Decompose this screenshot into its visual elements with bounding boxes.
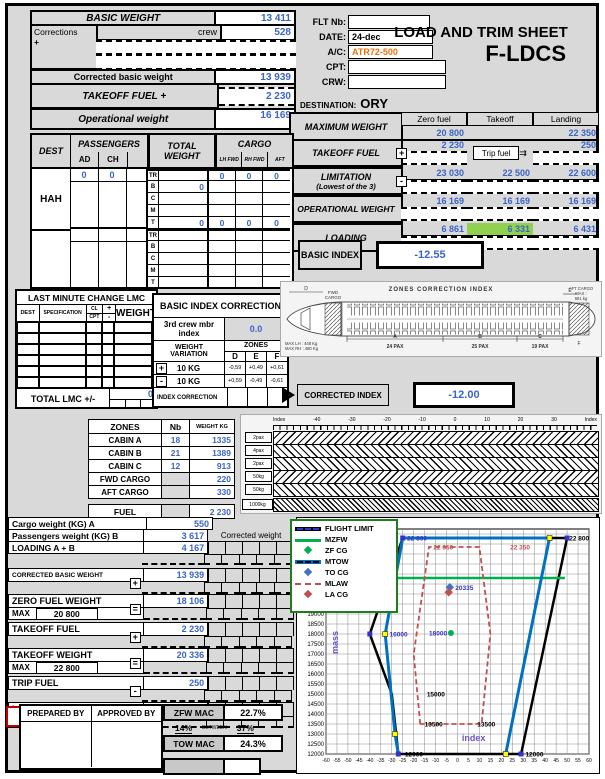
svg-text:13000: 13000 xyxy=(307,732,324,738)
entry-cell[interactable] xyxy=(277,622,294,636)
tof-entry-ld[interactable] xyxy=(533,151,599,165)
svg-text:-25: -25 xyxy=(399,758,406,764)
lmc-cell[interactable] xyxy=(114,355,152,366)
minus-symbol: - xyxy=(396,176,407,187)
mac-range-high: 37% xyxy=(237,723,254,734)
sum-trip-sym: - xyxy=(130,686,141,697)
cargo-aft-cell[interactable] xyxy=(263,231,290,241)
total-weight-cell[interactable]: 0 xyxy=(159,217,209,229)
svg-text:-30: -30 xyxy=(388,758,395,764)
opw-entry-ld[interactable] xyxy=(533,207,599,221)
extra-merged-2[interactable] xyxy=(126,241,147,289)
correction-value-1[interactable] xyxy=(220,40,296,56)
lmc-cell[interactable] xyxy=(17,366,39,377)
svg-text:-15: -15 xyxy=(421,758,428,764)
corrected-grid-row xyxy=(206,662,294,674)
entry-cell[interactable] xyxy=(259,608,276,620)
entry-cell[interactable] xyxy=(208,568,226,582)
sum-trip-value[interactable]: 250 xyxy=(143,676,208,690)
lim-entry-ld[interactable] xyxy=(533,180,599,194)
corrected-grid-row xyxy=(206,608,294,620)
lmc-cell[interactable] xyxy=(102,355,114,366)
lmc-minus: - xyxy=(103,314,115,322)
pax-row: M xyxy=(146,265,290,277)
cargo-rh-cell[interactable]: 0 xyxy=(236,217,263,229)
lmc-cell[interactable] xyxy=(17,344,39,355)
ad-merged-2[interactable] xyxy=(70,241,99,289)
lmc-cell[interactable] xyxy=(86,322,102,333)
tof-entry-zf[interactable] xyxy=(401,151,467,165)
lmc-cell[interactable] xyxy=(86,344,102,355)
legend-flight-limit: FLIGHT LIMIT xyxy=(325,524,374,533)
lmc-cell[interactable] xyxy=(114,333,152,344)
pax-row: B0 xyxy=(146,181,290,193)
entry-cell[interactable] xyxy=(226,541,243,554)
plus-symbol: + xyxy=(396,148,407,159)
total-weight-cell[interactable] xyxy=(159,205,209,217)
cargo-col-rhfwd: RH FWD xyxy=(242,152,267,167)
passengers-header: PASSENGERS xyxy=(71,135,147,152)
mtow-swatch xyxy=(295,558,321,566)
lmc-cell[interactable] xyxy=(17,355,39,366)
lim-entry-to[interactable] xyxy=(467,180,533,194)
lmc-cell[interactable] xyxy=(39,366,86,377)
entry-cell[interactable] xyxy=(206,608,224,620)
bic-plus-d: -0,59 xyxy=(225,362,246,374)
fwd-cargo-nb xyxy=(162,473,190,485)
lmc-cell[interactable] xyxy=(39,355,86,366)
entry-cell[interactable] xyxy=(222,554,239,565)
strip-row-50kg-a xyxy=(273,470,599,484)
entry-cell[interactable] xyxy=(242,662,259,674)
cargo-lh-cell[interactable] xyxy=(209,265,236,277)
opw-entry-zf[interactable] xyxy=(401,207,467,221)
cargo-aft-cell[interactable] xyxy=(263,193,290,205)
tow-mac-value: 24.3% xyxy=(223,735,283,752)
pax-row: C xyxy=(146,193,290,205)
corrected-grid-row xyxy=(204,554,292,565)
ac-label: A/C: xyxy=(300,47,346,57)
svg-text:15000: 15000 xyxy=(307,692,324,698)
lim-entry-zf[interactable] xyxy=(401,180,467,194)
cargo-aft-cell[interactable]: 0 xyxy=(263,217,290,229)
row-code: T xyxy=(146,217,159,229)
sum-tof-value: 2 230 xyxy=(143,622,208,636)
lmc-cell[interactable] xyxy=(86,377,102,388)
crw-input[interactable] xyxy=(348,75,446,89)
entry-dash[interactable] xyxy=(142,582,204,594)
ch-merged-1[interactable] xyxy=(98,181,127,229)
entry-cell[interactable] xyxy=(275,636,292,648)
cabin-b-weight: 1389 xyxy=(190,447,234,459)
entry-cell[interactable] xyxy=(222,582,239,594)
bic-minus-e: -0,49 xyxy=(246,375,267,387)
bic-index-correction-label: INDEX CORRECTION xyxy=(154,388,228,407)
row-code: C xyxy=(146,193,159,205)
lmc-cpt-header: CPT xyxy=(87,314,103,322)
entry-cell[interactable] xyxy=(226,648,243,662)
cargo-lh-cell[interactable] xyxy=(209,181,236,193)
svg-text:22 800: 22 800 xyxy=(569,536,589,543)
cargo-rh-cell[interactable] xyxy=(236,277,263,289)
lmc-total-label: TOTAL LMC +/- xyxy=(17,389,109,409)
svg-text:35: 35 xyxy=(531,758,537,764)
sum-cbw-sym: + xyxy=(130,578,141,589)
entry-cell[interactable] xyxy=(226,676,243,690)
sum-zfw-label: ZERO FUEL WEIGHT = xyxy=(8,594,144,608)
lmc-cell[interactable] xyxy=(114,322,152,333)
entry-cell[interactable] xyxy=(243,648,260,662)
strip-tick: -20 xyxy=(383,417,390,423)
sum-tow-max: 22 800 xyxy=(36,662,98,674)
entry-cell[interactable] xyxy=(257,636,274,648)
bic-zone-e: E xyxy=(246,352,267,362)
entry-cell[interactable] xyxy=(242,608,259,620)
arrow-icon xyxy=(282,387,295,403)
chart-legend: FLIGHT LIMIT MZFW ZF CG MTOW TO CG MLAW … xyxy=(290,519,398,613)
strip-tag-2pax-a: 2pax xyxy=(245,432,272,443)
svg-text:40: 40 xyxy=(542,758,548,764)
entry-cell[interactable] xyxy=(260,676,277,690)
entry-cell[interactable] xyxy=(206,662,224,674)
basic-index-label: BASIC INDEX xyxy=(298,240,362,270)
lmc-cell[interactable] xyxy=(114,344,152,355)
svg-text:18000: 18000 xyxy=(429,631,447,638)
cargo-lh-cell[interactable] xyxy=(209,193,236,205)
bic-plus-f: +0,61 xyxy=(267,362,287,374)
entry-cell[interactable] xyxy=(208,622,226,636)
entry-cell[interactable] xyxy=(260,622,277,636)
cargo-aft-cell[interactable] xyxy=(263,181,290,193)
sum-zfw-sym: = xyxy=(130,604,141,615)
approved-by-label: APPROVED BY xyxy=(92,706,162,721)
entry-cell[interactable] xyxy=(204,690,222,702)
svg-text:18000: 18000 xyxy=(307,632,324,638)
ad-merged-1[interactable] xyxy=(70,181,99,229)
corrected-grid-row xyxy=(204,690,292,702)
dest-value[interactable]: HAH xyxy=(32,169,71,231)
lmc-cell[interactable] xyxy=(102,333,114,344)
lim-to: 22 500 xyxy=(467,167,533,180)
mac-block: ZFW MAC 22.7% 14% BETWEEN 37% TOW MAC 24… xyxy=(163,704,283,775)
lmc-spec-header: SPECIFICATION xyxy=(40,305,87,321)
basic-index: BASIC INDEX -12.55 xyxy=(298,240,484,270)
entry-cell[interactable] xyxy=(208,648,226,662)
entry-cell[interactable] xyxy=(243,568,260,582)
sum-cbw-value: 13 939 xyxy=(143,568,208,582)
lmc-cell[interactable] xyxy=(39,333,86,344)
basic-weight-block: BASIC WEIGHT 13 411 Corrections + crew 5… xyxy=(30,10,296,130)
zone-a-pax: 24 PAX xyxy=(387,344,405,350)
svg-text:16000: 16000 xyxy=(307,672,324,678)
strip-tag-4pax: 4pax xyxy=(245,445,272,456)
lmc-cell[interactable] xyxy=(39,344,86,355)
bic-ic-d[interactable] xyxy=(228,388,248,407)
entry-cell[interactable] xyxy=(208,594,226,608)
opw-zf: 16 169 xyxy=(401,195,467,207)
total-weight-cell[interactable] xyxy=(159,241,209,253)
lmc-cell[interactable] xyxy=(114,377,152,388)
aft-cargo-nb xyxy=(162,486,190,498)
svg-text:5: 5 xyxy=(467,758,470,764)
cpt-label: CPT: xyxy=(300,62,346,72)
lmc-cell[interactable] xyxy=(102,366,114,377)
total-weight-cell[interactable] xyxy=(159,231,209,241)
lmc-weight-header: WEIGHT xyxy=(116,305,156,321)
date-label: DATE: xyxy=(300,32,346,42)
strips-axis-right: Index xyxy=(585,417,597,423)
total-weight-cell[interactable] xyxy=(159,253,209,265)
svg-text:-35: -35 xyxy=(377,758,384,764)
svg-text:12000: 12000 xyxy=(307,752,324,758)
cargo-lh-cell[interactable]: 0 xyxy=(209,217,236,229)
pax-table-body: HAH 0 0 TR000B0CMT0000TRBCMT xyxy=(32,167,292,289)
corrections-label: Corrections + xyxy=(30,24,98,70)
extra-merged-1[interactable] xyxy=(126,181,147,229)
entry-cell[interactable] xyxy=(208,541,226,554)
zone-a-label: A xyxy=(393,334,397,340)
strip-tick: -10 xyxy=(419,417,426,423)
entry-cell[interactable] xyxy=(222,690,239,702)
correction-entry-2[interactable] xyxy=(96,54,222,70)
cargo-lh-cell[interactable] xyxy=(209,277,236,289)
cargo-lh-cell[interactable]: 0 xyxy=(209,171,236,181)
bic-plus-sym: + xyxy=(156,363,167,374)
tocg-swatch xyxy=(295,569,321,577)
entry-cell[interactable] xyxy=(204,582,222,594)
strip-tag-1000kg: 1000kg xyxy=(242,499,273,510)
corrected-grid-row xyxy=(208,676,294,690)
destination-value: ORY xyxy=(360,96,388,111)
cargo-rh-cell[interactable] xyxy=(236,193,263,205)
entry-cell[interactable] xyxy=(204,636,222,648)
lmc-cell[interactable] xyxy=(17,322,39,333)
lmc-row xyxy=(17,322,156,333)
entry-cell[interactable] xyxy=(226,594,243,608)
opw-to: 16 169 xyxy=(467,195,533,207)
bic-zone-d: D xyxy=(225,352,246,362)
corrected-grid-row xyxy=(208,568,294,582)
bic-ic-e[interactable] xyxy=(248,388,268,407)
weight-header: WEIGHT KG xyxy=(190,420,234,433)
strip-tag-2pax-b: 2pax xyxy=(245,458,272,469)
cargo-rh-cell[interactable] xyxy=(236,253,263,265)
zone-d-label: D xyxy=(304,286,308,292)
aircraft-diagram-svg: ZONES CORRECTION INDEX FWD CARGO AFT CAR… xyxy=(281,282,601,356)
lmc-cell[interactable] xyxy=(39,377,86,388)
entry-dash[interactable] xyxy=(142,636,204,648)
entry-cell[interactable] xyxy=(260,648,277,662)
mac-extra-white[interactable] xyxy=(223,758,261,775)
strip-tick: 10 xyxy=(484,417,490,423)
cargo-aft-cell[interactable] xyxy=(263,265,290,277)
entry-cell[interactable] xyxy=(226,568,243,582)
lmc-dest-header: DEST xyxy=(17,305,40,321)
svg-text:16000: 16000 xyxy=(390,632,408,639)
pax-row: TR000 xyxy=(146,169,290,181)
lmc-cl-header: CL xyxy=(87,305,103,314)
svg-text:50: 50 xyxy=(564,758,570,764)
entry-cell[interactable] xyxy=(260,541,277,554)
lmc-total-cell[interactable] xyxy=(126,400,142,409)
legend-mlaw: MLAW xyxy=(325,579,348,588)
entry-dash[interactable] xyxy=(142,554,204,565)
pax-row: M xyxy=(146,205,290,217)
svg-text:45: 45 xyxy=(553,758,559,764)
trip-fuel-box: Trip fuel xyxy=(473,146,519,160)
corrected-index: CORRECTED INDEX -12.00 xyxy=(282,382,515,408)
entry-cell[interactable] xyxy=(243,594,260,608)
lmc-cell[interactable] xyxy=(86,333,102,344)
entry-dash[interactable] xyxy=(144,608,206,620)
zone-f-label: F xyxy=(577,341,580,347)
svg-text:22 350: 22 350 xyxy=(510,545,530,552)
entry-cell[interactable] xyxy=(243,541,260,554)
entry-cell[interactable] xyxy=(260,568,277,582)
cargo-rh-cell[interactable] xyxy=(236,241,263,253)
bic-crew-value[interactable]: 0.0 xyxy=(225,318,287,340)
entry-cell[interactable] xyxy=(257,690,274,702)
lmc-total-cell[interactable] xyxy=(110,400,126,409)
cabin-c-nb: 12 xyxy=(162,460,190,472)
crew-value[interactable]: 528 xyxy=(220,24,296,41)
svg-text:-10: -10 xyxy=(432,758,439,764)
legend-tocg: TO CG xyxy=(325,568,349,577)
entry-cell[interactable] xyxy=(243,676,260,690)
svg-text:22 350: 22 350 xyxy=(433,545,453,552)
dest-cell-2[interactable] xyxy=(32,229,71,289)
correction-entry-1[interactable] xyxy=(96,40,222,56)
zone-b-label: B xyxy=(478,334,482,340)
approved-by-field[interactable] xyxy=(92,722,162,767)
entry-cell[interactable] xyxy=(277,676,294,690)
sum-cbw-label: CORRECTED BASIC WEIGHT + xyxy=(8,568,144,582)
row-code: B xyxy=(146,181,159,193)
row-code: TR xyxy=(146,231,159,241)
entry-cell[interactable] xyxy=(240,636,257,648)
entry-dash[interactable] xyxy=(142,690,204,702)
destination-label: DESTINATION: xyxy=(300,101,356,110)
strip-tick: 30 xyxy=(551,417,557,423)
lim-zf: 23 030 xyxy=(401,167,467,180)
entry-cell[interactable] xyxy=(260,594,277,608)
ch-merged-2[interactable] xyxy=(98,241,127,289)
lmc-cell[interactable] xyxy=(102,377,114,388)
svg-text:20: 20 xyxy=(499,758,505,764)
strip-tick: 20 xyxy=(518,417,524,423)
svg-text:30: 30 xyxy=(520,758,526,764)
cargo-rh-cell[interactable] xyxy=(236,181,263,193)
lmc-cell[interactable] xyxy=(102,322,114,333)
entry-dash[interactable] xyxy=(144,662,206,674)
entry-cell[interactable] xyxy=(240,554,257,565)
loading-entry-ld[interactable] xyxy=(533,236,599,250)
entry-cell[interactable] xyxy=(259,662,276,674)
entry-cell[interactable] xyxy=(277,648,294,662)
row-code: C xyxy=(146,253,159,265)
pax-row: TR xyxy=(146,229,290,241)
flight-limit-swatch xyxy=(295,525,321,533)
lmc-cell[interactable] xyxy=(114,366,152,377)
cargo-aft-cell[interactable] xyxy=(263,253,290,265)
prepared-by-field[interactable] xyxy=(21,722,92,767)
entry-cell[interactable] xyxy=(257,554,274,565)
pax-cargo-table: DEST PASSENGERS AD CH TOTAL WEIGHT CARGO… xyxy=(30,133,294,289)
cargo-lh-cell[interactable] xyxy=(209,253,236,265)
mzfw-swatch xyxy=(295,536,321,544)
entry-cell[interactable] xyxy=(226,622,243,636)
lmc-cell[interactable] xyxy=(102,344,114,355)
lmc-cell[interactable] xyxy=(39,322,86,333)
cargo-aft-cell[interactable] xyxy=(263,205,290,217)
total-weight-cell[interactable]: 0 xyxy=(159,181,209,193)
pax-row: T0000 xyxy=(146,217,290,229)
corrected-grid-row xyxy=(208,648,294,662)
cargo-lh-cell[interactable] xyxy=(209,231,236,241)
lmc-cell[interactable] xyxy=(17,377,39,388)
total-weight-cell[interactable] xyxy=(159,265,209,277)
entry-cell[interactable] xyxy=(208,676,226,690)
entry-cell[interactable] xyxy=(224,662,241,674)
cargo-rh-cell[interactable]: 0 xyxy=(236,171,263,181)
svg-text:15: 15 xyxy=(488,758,494,764)
mlaw-swatch xyxy=(295,580,321,588)
dest-header: DEST xyxy=(32,135,71,167)
entry-cell[interactable] xyxy=(204,554,222,565)
entry-cell[interactable] xyxy=(240,690,257,702)
cargo-col-lhfwd: LH FWD xyxy=(217,152,242,167)
entry-cell[interactable] xyxy=(240,582,257,594)
lmc-cell[interactable] xyxy=(17,333,39,344)
aft-cargo-label: AFT CARGO xyxy=(89,486,162,498)
limitation-label: LIMITATION (Lowest of the 3) - xyxy=(289,167,403,195)
bic-plus-e: +0,49 xyxy=(246,362,267,374)
entry-cell[interactable] xyxy=(277,662,294,674)
loading-ab-label: LOADING A + B xyxy=(8,541,144,554)
entry-cell[interactable] xyxy=(243,622,260,636)
total-weight-cell[interactable] xyxy=(159,171,209,181)
tof-landing: 250 xyxy=(533,139,599,151)
corrected-index-label: CORRECTED INDEX xyxy=(297,384,389,406)
total-weight-cell[interactable] xyxy=(159,277,209,289)
opw-label: OPERATIONAL WEIGHT xyxy=(289,195,403,223)
entry-cell[interactable] xyxy=(257,582,274,594)
total-weight-cell[interactable] xyxy=(159,193,209,205)
cargo-lh-cell[interactable] xyxy=(209,241,236,253)
entry-cell[interactable] xyxy=(224,608,241,620)
tow-mac-label: TOW MAC xyxy=(163,735,225,752)
cargo-lh-cell[interactable] xyxy=(209,205,236,217)
lmc-cell[interactable] xyxy=(86,366,102,377)
load-trim-sheet: BASIC WEIGHT 13 411 Corrections + crew 5… xyxy=(0,0,605,779)
cargo-aft-cell[interactable]: 0 xyxy=(263,171,290,181)
correction-value-2[interactable] xyxy=(220,54,296,70)
aft-cargo-weight: 330 xyxy=(190,486,234,498)
svg-text:0: 0 xyxy=(456,758,459,764)
sum-trip-label: TRIP FUEL - xyxy=(8,676,144,690)
svg-text:-20: -20 xyxy=(410,758,417,764)
cabin-b-nb: 21 xyxy=(162,447,190,459)
takeoff-fuel-value[interactable]: 2 230 xyxy=(219,87,294,106)
entry-cell[interactable] xyxy=(222,636,239,648)
cargo-rh-cell[interactable] xyxy=(236,205,263,217)
lmc-cell[interactable] xyxy=(86,355,102,366)
cargo-aft-cell[interactable] xyxy=(263,241,290,253)
opw-entry-to[interactable] xyxy=(467,207,533,221)
cargo-rh-cell[interactable] xyxy=(236,231,263,241)
cargo-rh-cell[interactable] xyxy=(236,265,263,277)
entry-cell[interactable] xyxy=(275,690,292,702)
